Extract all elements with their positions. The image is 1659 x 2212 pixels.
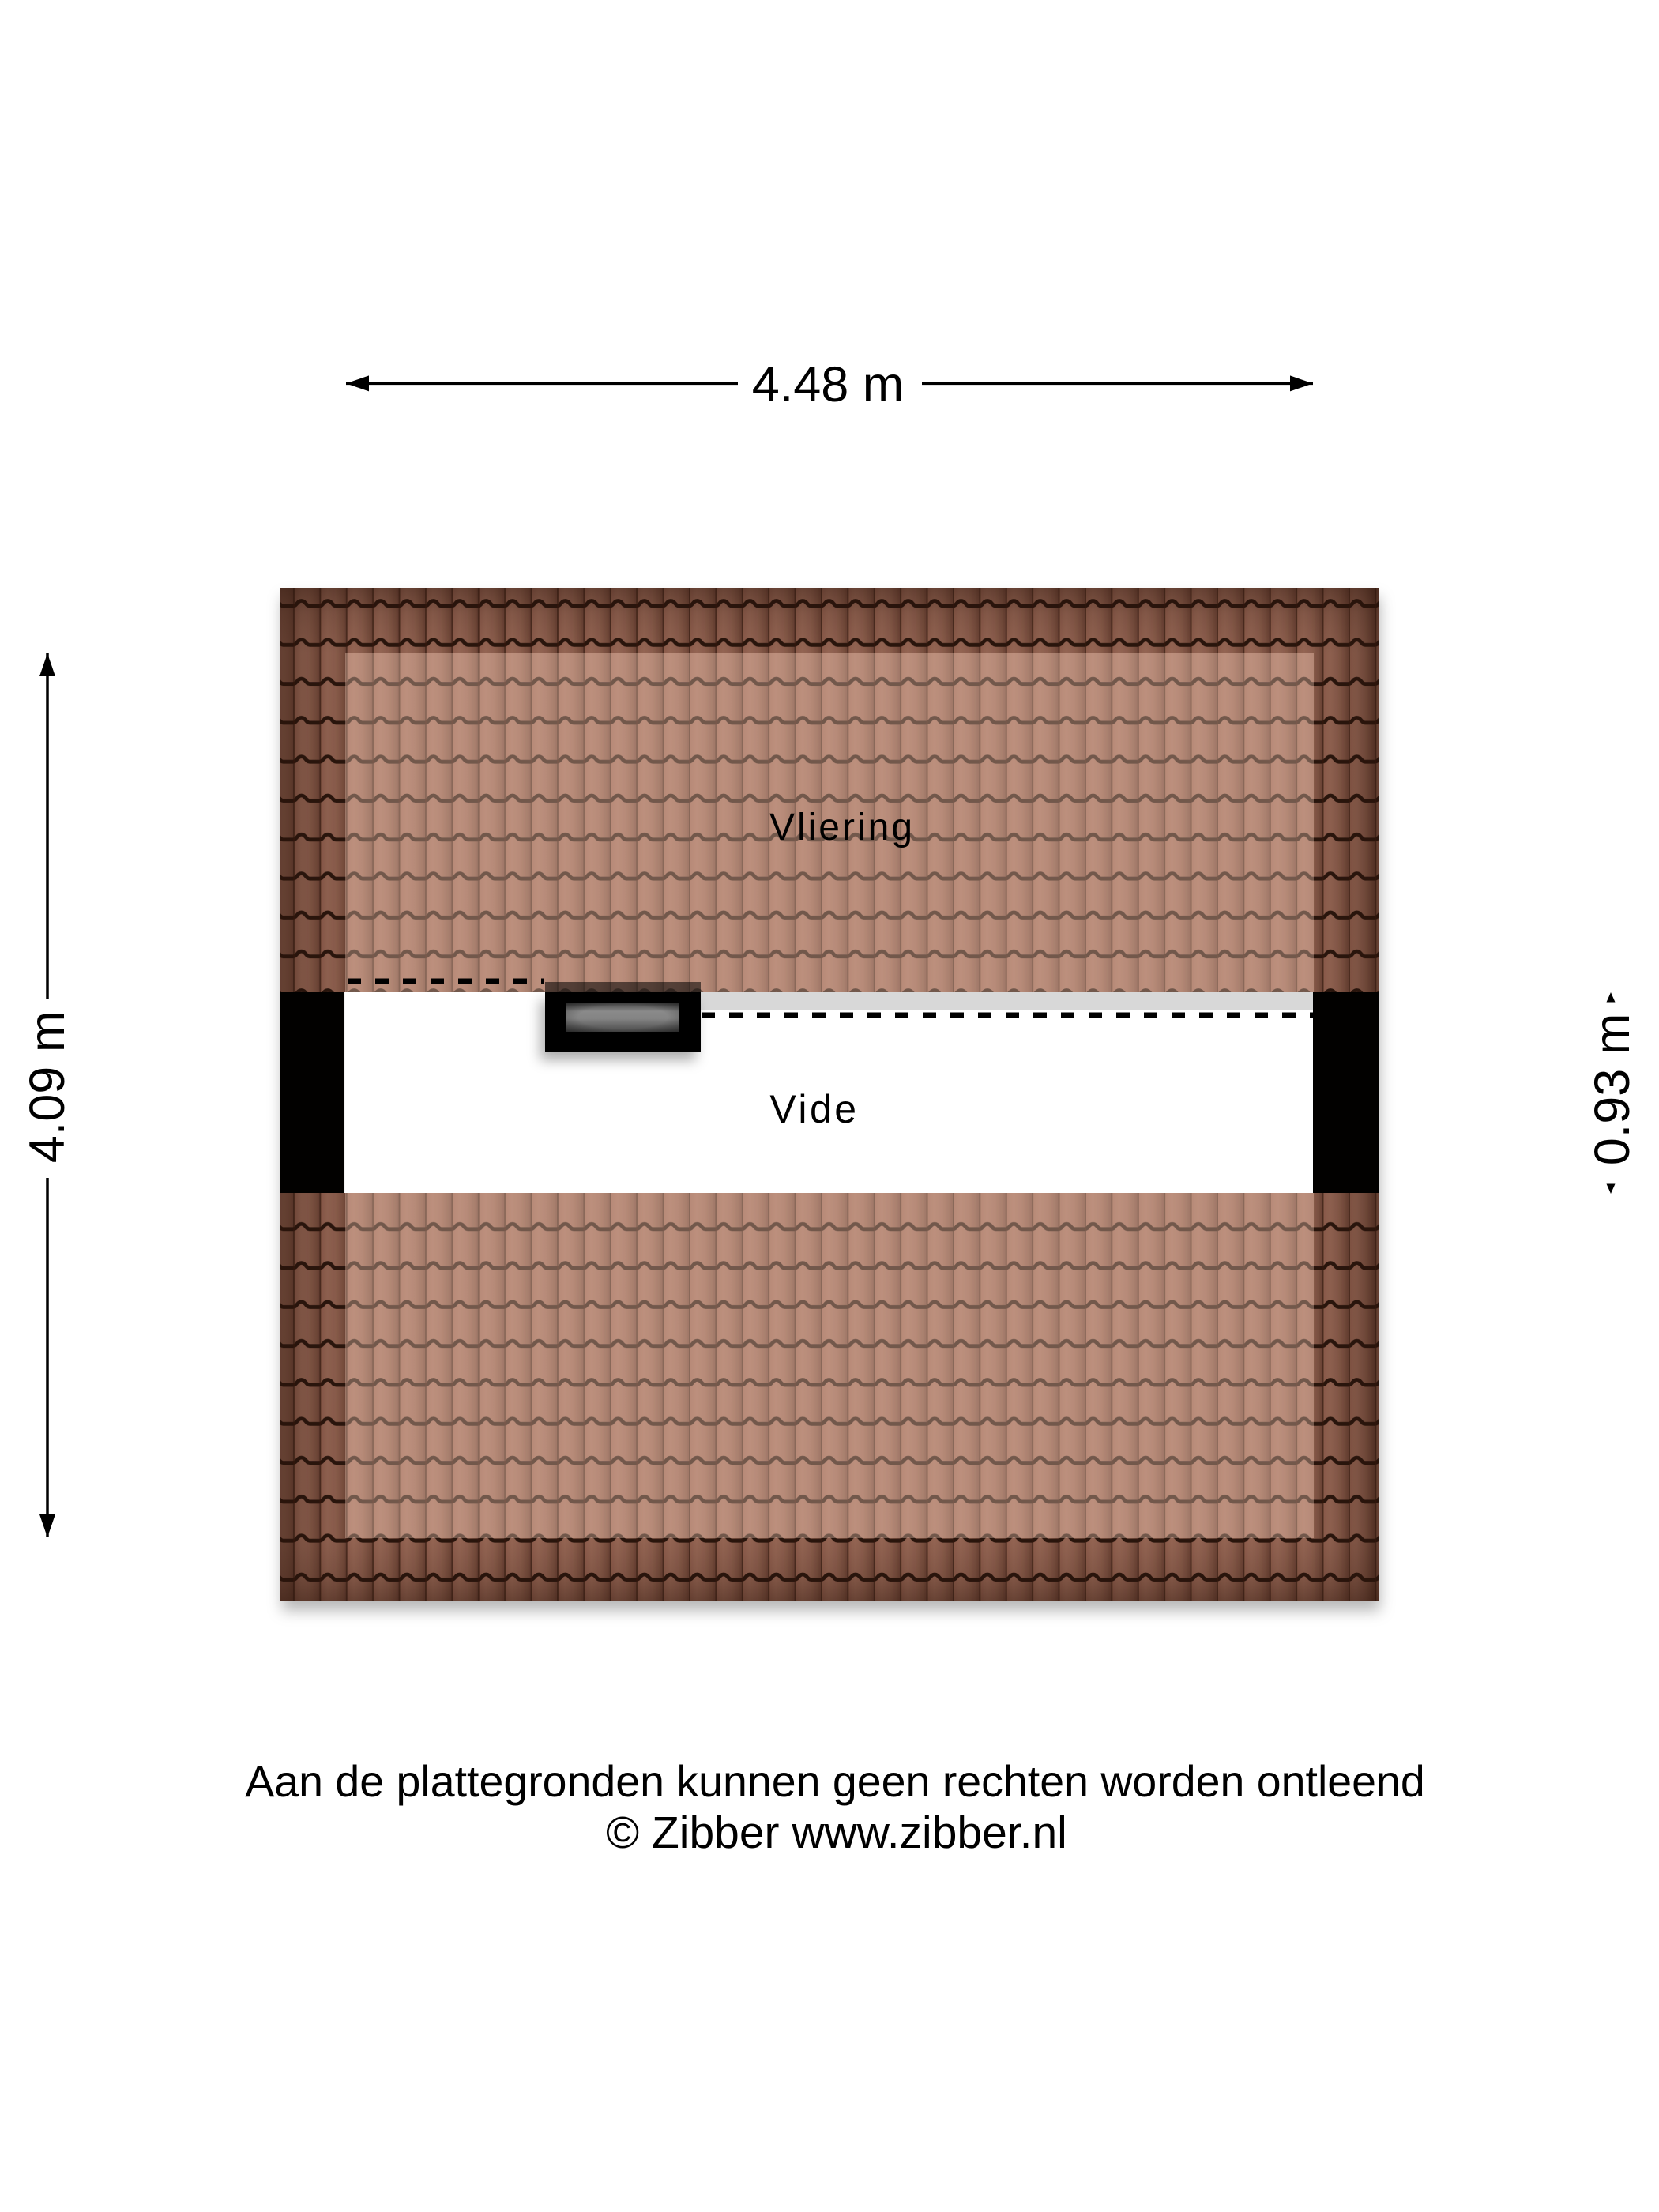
svg-text:© Zibber www.zibber.nl: © Zibber www.zibber.nl xyxy=(606,1808,1067,1858)
svg-text:Vliering: Vliering xyxy=(769,807,915,848)
svg-text:4.09 m: 4.09 m xyxy=(20,1011,75,1164)
svg-text:Vide: Vide xyxy=(769,1087,859,1131)
svg-text:Aan de plattegronden kunnen ge: Aan de plattegronden kunnen geen rechten… xyxy=(245,1757,1425,1806)
svg-text:0.93 m: 0.93 m xyxy=(1585,1014,1640,1166)
svg-text:4.48 m: 4.48 m xyxy=(752,357,905,412)
